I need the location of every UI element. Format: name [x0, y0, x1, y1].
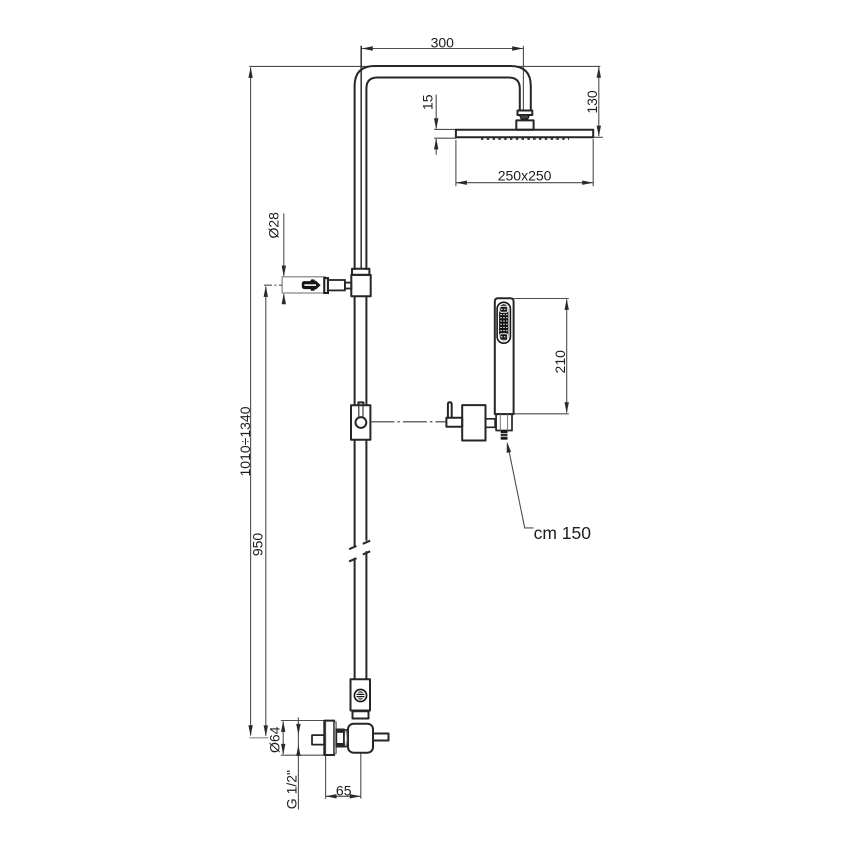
- svg-text:1010÷1340: 1010÷1340: [237, 406, 253, 476]
- svg-text:250x250: 250x250: [498, 168, 552, 184]
- svg-text:cm 150: cm 150: [534, 523, 592, 543]
- svg-text:210: 210: [552, 350, 568, 374]
- svg-text:15: 15: [420, 94, 436, 110]
- svg-text:Ø28: Ø28: [266, 212, 282, 239]
- svg-text:300: 300: [431, 35, 455, 51]
- svg-text:Ø64: Ø64: [267, 726, 283, 753]
- svg-text:130: 130: [584, 90, 600, 114]
- svg-text:G 1/2": G 1/2": [284, 770, 300, 809]
- svg-text:65: 65: [336, 782, 352, 798]
- svg-text:950: 950: [249, 533, 265, 557]
